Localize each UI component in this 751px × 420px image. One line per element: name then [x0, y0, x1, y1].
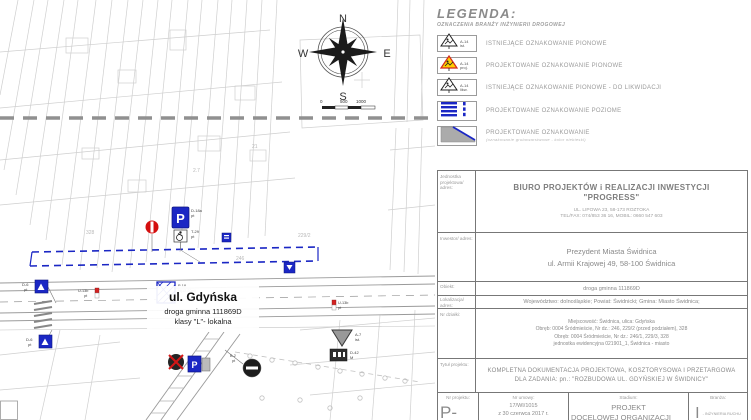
svg-text:500: 500 [340, 99, 348, 104]
tree-boundary-line [235, 352, 420, 410]
svg-text:pt: pt [24, 287, 28, 292]
corner-box [1, 401, 18, 420]
small-blue-sign-2 [284, 262, 295, 273]
project-title-line2: DLA ZADANIA: pn.: "ROZBUDOWA UL. GDYŃSKI… [515, 376, 709, 385]
svg-text:pt: pt [28, 342, 32, 347]
svg-text:229/2: 229/2 [298, 233, 311, 239]
svg-text:klasy "L"- lokalna: klasy "L"- lokalna [174, 317, 232, 326]
svg-text:2.7: 2.7 [193, 168, 200, 174]
legend-label: ISTNIEJĄCE OZNAKOWANIE PIONOWE [477, 41, 607, 47]
legend-title: LEGENDA: [437, 6, 747, 21]
svg-text:U-13b: U-13b [338, 301, 348, 305]
legend-subtitle: OZNACZENIA BRANŻY INŻYNIERII DROGOWEJ [437, 22, 747, 28]
existing-vertical-sign-icon [440, 33, 458, 54]
map-canvas: P-18 H(12.00m) D-6 pt D-6 pt [0, 0, 435, 420]
svg-text:pt: pt [191, 213, 195, 218]
svg-text:ul. Gdyńska: ul. Gdyńska [169, 290, 237, 304]
blue-road-markings [30, 247, 318, 266]
cadastral-lines [0, 0, 435, 420]
row-project-title: Tytuł projektu: KOMPLETNA DOKUMENTACJA P… [438, 359, 747, 393]
crosswalk-markings [34, 301, 52, 328]
street-label: ul. Gdyńska droga gminna 111869D klasy "… [147, 286, 259, 332]
svg-text:pt: pt [191, 234, 195, 239]
legend-label: PROJEKTOWANE OZNAKOWANIE PIONOWE [477, 63, 623, 69]
svg-text:21: 21 [252, 144, 258, 150]
design-office-name2: "PROGRESS" [584, 193, 640, 203]
legend-item-liquidated-vertical: A-14 likw. ISTNIEJĄCE OZNAKOWANIE PIONOW… [437, 79, 747, 96]
svg-text:pt: pt [338, 306, 342, 310]
diagonal-road [146, 332, 240, 420]
legend-list: A-14 ist. ISTNIEJĄCE OZNAKOWANIE PIONOWE [437, 35, 747, 146]
legend-tag2: likw. [460, 88, 468, 92]
row-location: Lokalizacja/ adres: Województwo: dolnośl… [438, 296, 747, 309]
legend-item-proposed-surface: PROJEKTOWANE OZNAKOWANIE (oznakowanie gr… [437, 126, 747, 146]
row-label: Tytuł projektu: [438, 359, 476, 392]
row-label: Obiekt: [438, 282, 476, 295]
svg-text:1000: 1000 [356, 99, 367, 104]
legend-tag2: proj. [460, 66, 468, 70]
legend-item-existing-vertical: A-14 ist. ISTNIEJĄCE OZNAKOWANIE PIONOWE [437, 35, 747, 52]
contract-date: z 30 czerwca 2017 r. [498, 411, 548, 419]
legend-tag2: ist. [460, 44, 468, 48]
cell-header: Nr projektu: [446, 395, 470, 400]
contract-number: 17/WI/1015 [509, 403, 537, 411]
svg-text:U-13b: U-13b [78, 289, 88, 293]
row-object: Obiekt: droga gminna 111869D [438, 282, 747, 296]
row-label: Inwestor/ adres: [438, 233, 476, 281]
branch-name: - INŻYNIERIA RUCHU [703, 412, 741, 416]
project-title-line1: KOMPLETNA DOKUMENTACJA PROJEKTOWA, KOSZT… [487, 367, 735, 376]
svg-text:B-2: B-2 [230, 354, 236, 358]
map-drawing: P-18 H(12.00m) D-6 pt D-6 pt [0, 0, 435, 420]
cell-contract-number: Nr umowy: 17/WI/1015 z 30 czerwca 2017 r… [479, 393, 569, 420]
svg-text:0: 0 [320, 99, 323, 104]
svg-text:P: P [191, 360, 197, 370]
small-blue-sign-1 [222, 233, 231, 242]
legend-label: PROJEKTOWANE OZNAKOWANIE POZIOME [477, 108, 621, 114]
svg-text:M: M [350, 355, 353, 360]
traffic-plan-sheet: P-18 H(12.00m) D-6 pt D-6 pt [0, 0, 751, 420]
scale-bar: 0 500 1000 [320, 99, 375, 109]
row-bottom: Nr projektu: P-165 Nr umowy: 17/WI/1015 … [438, 393, 747, 420]
investor-address: ul. Armii Krajowej 49, 58-100 Świdnica [548, 259, 676, 268]
svg-text:droga gminna 111869D: droga gminna 111869D [164, 307, 242, 316]
legend-sublabel: (oznakowanie grubowarstwowe - kolor nieb… [486, 137, 590, 142]
investor-name: Prezydent Miasta Świdnica [566, 247, 656, 256]
proposed-vertical-sign-icon [440, 55, 458, 76]
liquidated-vertical-sign-icon [440, 77, 458, 98]
d6-sign-bottom: D-6 pt [26, 330, 52, 348]
b2-no-entry-sign: B-2 pt [225, 350, 261, 377]
row-label: Jednostka projektowa/ adres: [438, 171, 476, 232]
svg-text:P: P [176, 211, 185, 226]
stadium-line1: PROJEKT [611, 403, 646, 413]
cell-project-number: Nr projektu: P-165 [438, 393, 479, 420]
object-value: droga gminna 111869D [583, 286, 640, 292]
plot-line: Obręb: 0004 Śródmieście, Nr dz.: 246, 22… [536, 326, 688, 333]
legend-item-proposed-horizontal: PROJEKTOWANE OZNAKOWANIE POZIOME [437, 101, 747, 121]
legend: LEGENDA: OZNACZENIA BRANŻY INŻYNIERII DR… [437, 6, 747, 146]
location-value: Województwo: dolnośląskie; Powiat: Świdn… [523, 299, 699, 305]
cell-header: Stadium: [619, 395, 637, 400]
d6-sign-top: D-6 pt [22, 280, 56, 303]
svg-text:N: N [339, 13, 347, 25]
surface-marking-icon [440, 125, 476, 148]
right-panel: LEGENDA: OZNACZENIA BRANŻY INŻYNIERII DR… [435, 0, 751, 420]
compass-rose: N S W E [298, 13, 391, 103]
legend-item-proposed-vertical: A-14 proj. PROJEKTOWANE OZNAKOWANIE PION… [437, 57, 747, 74]
cell-header: Branża: [710, 395, 726, 400]
plot-line: Miejscowość: Świdnica, ulica: Gdyńska [568, 319, 655, 326]
row-plots: Nr działki: Miejscowość: Świdnica, ulica… [438, 309, 747, 359]
plot-line: Obręb: 0004 Śródmieście, Nr dz.: 246/1, … [554, 334, 669, 341]
design-office-phone: TEL/FAX: 074/853 36 16, MOBIL: 0660 547 … [560, 214, 662, 221]
u13b-marker-right: U-13b pt [332, 300, 348, 310]
branch-symbol: I [695, 406, 699, 420]
row-investor: Inwestor/ adres: Prezydent Miasta Świdni… [438, 233, 747, 282]
svg-text:W: W [298, 48, 309, 60]
row-label: Lokalizacja/ adres: [438, 296, 476, 308]
legend-label-wrap: PROJEKTOWANE OZNAKOWANIE (oznakowanie gr… [477, 130, 590, 142]
horizontal-marking-icon [440, 101, 474, 122]
cell-header: Nr umowy: [513, 395, 535, 400]
plot-line: jednostka ewidencyjna 021901_1, Świdnica… [554, 341, 670, 348]
design-office-name: BIURO PROJEKTÓW i REALIZACJI INWESTYCJI [513, 183, 709, 193]
svg-text:E: E [383, 48, 390, 60]
svg-text:ist.: ist. [355, 337, 360, 342]
row-design-office: Jednostka projektowa/ adres: BIURO PROJE… [438, 171, 747, 233]
svg-text:328: 328 [86, 230, 95, 236]
project-number: P-165 [440, 403, 476, 420]
removed-sign-x [168, 354, 184, 370]
legend-label: ISTNIEJĄCE OZNAKOWANIE PIONOWE - DO LIKW… [477, 85, 661, 91]
svg-text:246: 246 [236, 256, 245, 262]
cell-branch: Branża: I - INŻYNIERIA RUCHU [689, 393, 747, 420]
disabled-parking-sign: P D-18a pt T-29 pt [172, 207, 203, 262]
svg-text:pt: pt [84, 294, 88, 298]
svg-text:pt: pt [232, 359, 236, 363]
legend-label: PROJEKTOWANE OZNAKOWANIE [486, 130, 590, 136]
stadium-line2: DOCELOWEJ ORGANIZACJI RUCHU [571, 413, 686, 420]
row-label: Nr działki: [438, 309, 476, 358]
cell-stadium: Stadium: PROJEKT DOCELOWEJ ORGANIZACJI R… [569, 393, 689, 420]
title-block: Jednostka projektowa/ adres: BIURO PROJE… [437, 170, 748, 420]
a7-yield-sign: A-7 ist. [332, 330, 362, 346]
small-parking-sign: P [188, 356, 210, 372]
